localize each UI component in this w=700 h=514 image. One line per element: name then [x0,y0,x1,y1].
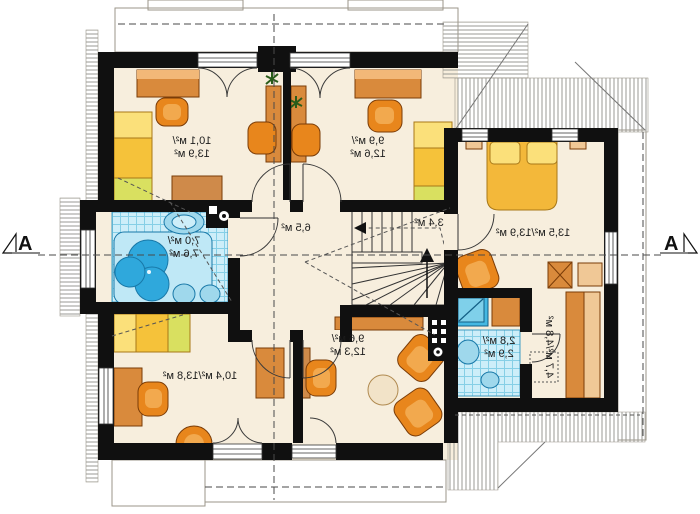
svg-text:10,4 м²/13,8 м²: 10,4 м²/13,8 м² [162,370,237,382]
bed-pillow [527,142,557,164]
wall-hall-bottom-b [290,330,303,342]
section-marker-right: A [660,233,697,255]
window-bedroom-bottom-left [99,368,113,424]
drain [147,270,151,274]
svg-text:7,6 м²: 7,6 м² [169,248,199,260]
sink-bowl [172,215,196,229]
bed-blanket [168,314,190,352]
bidet-icon [200,285,220,303]
wall-shower-right-a [520,288,532,332]
attic-strip-top [115,8,458,52]
toilet-icon [457,340,479,364]
label-bedroom-bottom-left: 10,4 м²/13,8 м² [162,370,237,382]
label-bathroom: 7,0 м²/ 7,6 м² [167,235,201,260]
label-shower-room: 2,8 м²/ 2,9 м² [482,335,516,360]
roof-hatch-top-right-a [443,22,528,78]
svg-text:3,4 м²: 3,4 м² [414,217,444,229]
chair-seat [375,107,394,124]
svg-text:12,3 м²: 12,3 м² [330,346,366,358]
cabinet-icon [492,294,520,326]
chair-icon [248,122,276,154]
wall-left-upper [98,52,114,205]
svg-text:10,1 м²/: 10,1 м²/ [172,135,212,147]
bed-pillow [490,142,520,164]
eave-hatch-left-lower [86,312,98,482]
label-dressing-corridor: 4,7 м²/4,8 м² [543,316,555,379]
wardrobe-icon [584,292,600,398]
svg-text:2,8 м²/: 2,8 м²/ [482,335,516,347]
attic-strip-bottom [205,460,446,502]
wall-divider-bottom-rooms [293,342,303,443]
wall-bottom-c [336,443,443,460]
chair-seat [313,368,330,388]
svg-text:13,9 м²: 13,9 м² [174,148,210,160]
section-flag-icon [684,234,697,253]
sink-icon [481,372,499,388]
cabinet-icon [578,263,602,286]
chair-seat [145,389,162,408]
wall-bottom-a [110,443,213,460]
svg-text:9,9 м²/: 9,9 м²/ [351,135,385,147]
wardrobe-icon [566,292,584,398]
desk-top-highlight [137,70,199,79]
svg-text:2,9 м²: 2,9 м² [484,348,514,360]
floor-plan-drawing: 10,1 м²/ 13,9 м² 9,9 м²/ 12,6 м² 13,5 м²… [0,0,700,514]
bathtub-basin [115,257,145,287]
eave-hatch-left-bath [60,198,80,316]
svg-text:9,6 м²/: 9,6 м²/ [331,333,365,345]
section-letter-left: A [18,233,32,255]
section-flag-icon [3,234,16,253]
label-bedroom-top-middle: 9,9 м²/ 12,6 м² [350,135,386,160]
wall-shower-right-b [520,364,532,398]
svg-text:4,7 м²/4,8 м²: 4,7 м²/4,8 м² [543,316,555,379]
wall-right-wing-left [444,128,458,443]
wall-bathroom-bottom [80,302,240,314]
bed-pillow [114,314,136,352]
floor-plan-page: 10,1 м²/ 13,9 м² 9,9 м²/ 12,6 м² 13,5 м²… [0,0,700,514]
svg-text:7,0 м²/: 7,0 м²/ [167,235,201,247]
bed-pillow [114,112,152,138]
wall-shower-top [448,288,532,298]
wall-bottom-b [262,443,292,460]
hip-line-3 [498,442,545,488]
section-letter-right: A [664,233,678,255]
window-bedroom-right-1 [462,129,488,141]
label-bedroom-top-left: 10,1 м²/ 13,9 м² [172,135,212,160]
chair-icon [292,124,320,156]
label-staircase: 3,4 м² [414,217,444,229]
roof-hatch-bottom-right [448,412,645,490]
stair-rail [352,252,422,263]
flue-block-room4 [428,315,448,361]
section-marker-left: A [3,233,40,255]
window-bedroom-right-2 [552,129,578,141]
svg-text:6,5 м²: 6,5 м² [281,222,311,234]
svg-text:13,5 м²/13,9 м²: 13,5 м²/13,9 м² [495,227,570,239]
bed-blanket [114,178,152,202]
svg-text:12,6 м²: 12,6 м² [350,148,386,160]
chair-seat [163,104,181,120]
window-bedroom-right-side [605,232,617,284]
window-bathroom [81,230,95,288]
wall-hall-bottom-a [240,330,252,342]
lower-roof-block [112,460,205,506]
toilet-icon [173,284,195,304]
wall-connector [228,302,240,342]
label-bedroom-right: 13,5 м²/13,9 м² [495,227,570,239]
wardrobe-icon [256,348,284,398]
desk-icon [172,176,222,202]
eave-hatch-left-upper [86,30,98,202]
label-room-bottom-middle: 9,6 м²/ 12,3 м² [330,333,366,358]
label-hall: 6,5 м² [281,222,311,234]
right-eave-strip [618,130,646,440]
wall-right-wing-bottom [448,398,618,412]
round-table-icon [368,375,398,405]
desk-top-highlight [355,70,421,79]
